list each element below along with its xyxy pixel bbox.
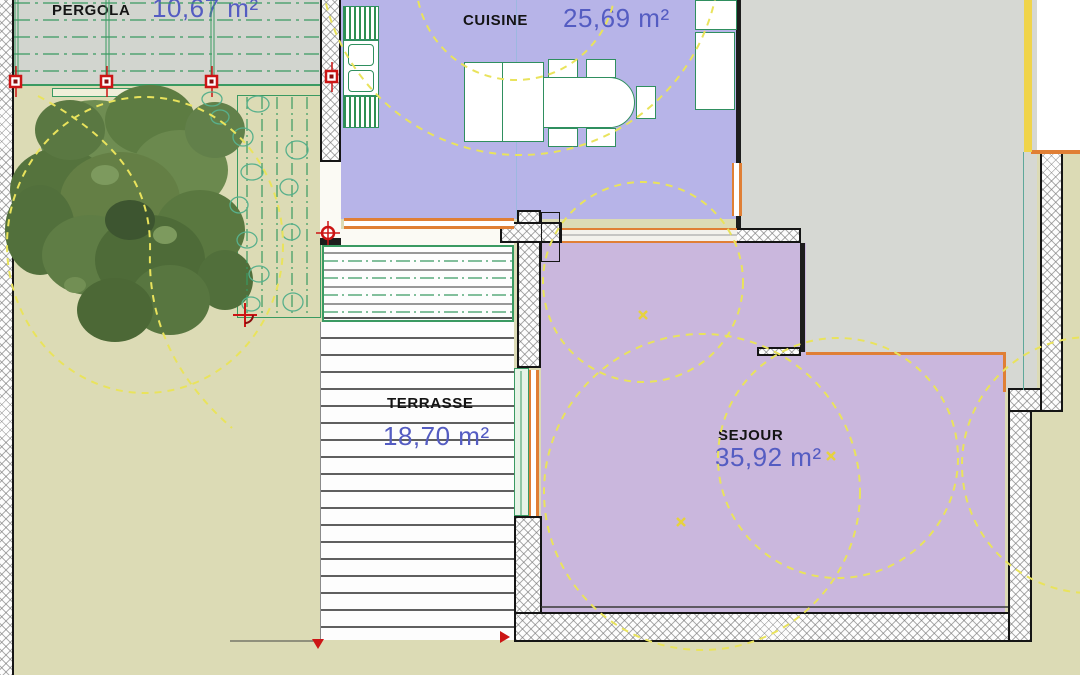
door-cuisine-east [732,163,742,216]
area-value-pergola: 10,67 m² [152,0,259,24]
floor-plan-canvas: PERGOLA 10,67 m² CUISINE 25,69 m² TERRAS… [0,0,1080,675]
teal-axis-line [1023,152,1024,390]
wall-cuisine-left [320,0,341,162]
room-label-pergola: PERGOLA [52,2,130,19]
dining-chair-bottom-1 [548,128,578,147]
wall-right-upper [1040,152,1063,412]
green-deck-zone [322,245,514,322]
outside-white-area [1031,0,1080,152]
door-terrasse-teal-strip [514,368,529,516]
wall-door-sill [757,347,801,356]
white-band-under-cuisine [341,229,514,245]
orange-line-top-right [1031,150,1080,154]
room-gray-b [801,0,1037,352]
kitchen-unit-top [343,6,379,40]
kitchen-sink-basin-1 [348,44,374,66]
area-value-sejour: 35,92 m² [715,442,822,473]
door-leaf-outline [541,212,560,262]
doorway-gap-white [320,162,341,238]
room-sejour-right [806,352,1005,612]
door-cuisine-south-sliding [344,218,514,229]
kitchen-cabinet-tall [695,32,735,110]
kitchen-fridge [695,0,737,30]
dining-chair-top-1 [548,59,578,78]
yellow-band-top-right [1024,0,1032,152]
door-terrasse-sejour [529,370,539,516]
room-gray-sliver [1005,352,1037,390]
dining-chair-right [636,86,656,119]
area-value-terrasse: 18,70 m² [383,421,490,452]
room-label-terrasse: TERRASSE [387,395,473,412]
kitchen-unit-bottom [343,96,379,128]
tree-canopy [5,85,253,342]
dining-island [464,62,544,142]
beam-sejour-top [562,228,737,243]
wall-sejour-top-right [735,228,801,243]
kitchen-sink-basin-2 [348,70,374,92]
dining-chair-bottom-2 [586,128,616,147]
dining-island-divider [502,63,503,141]
wall-sejour-bottom [514,612,1032,642]
room-label-cuisine: CUISINE [463,12,528,29]
sejour-orange-edge [1003,352,1006,392]
pergola-ledge [52,88,157,97]
garden-path-strip [237,95,321,318]
dining-table [543,77,635,128]
dining-chair-top-2 [586,59,616,78]
wall-left-boundary [0,0,14,675]
wall-gray-sejour-divider [800,243,805,352]
wall-sejour-right-lower [1008,400,1032,642]
room-terrasse-deck [320,322,514,640]
area-value-cuisine: 25,69 m² [563,3,670,34]
